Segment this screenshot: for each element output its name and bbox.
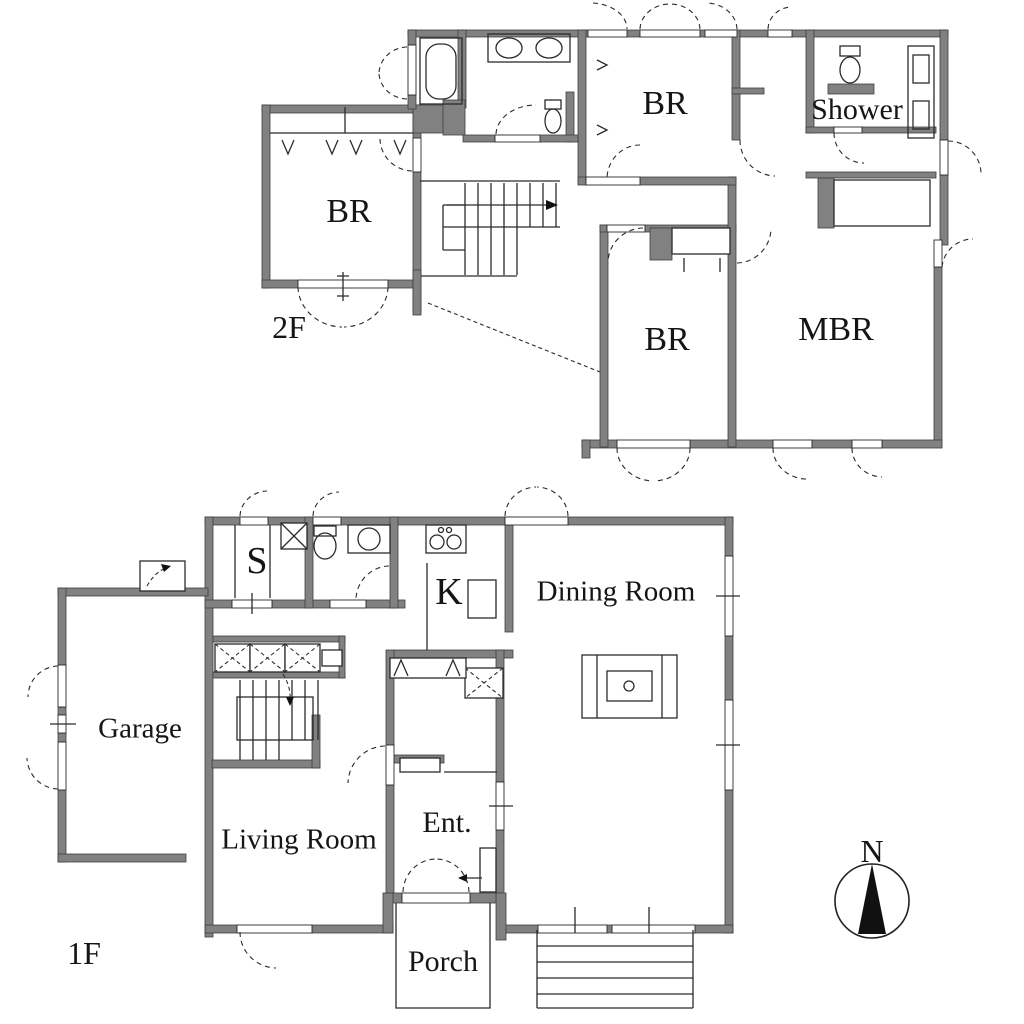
closet-2f-br-left xyxy=(270,107,413,154)
kitchen-stove-icon xyxy=(426,525,466,553)
compass-north-icon xyxy=(835,864,909,938)
floor-label-2f: 2F xyxy=(272,311,306,343)
floorplan-canvas: 2F BR BR Shower BR MBR 1F S K Dining Roo… xyxy=(0,0,1024,1024)
floor-2f-plan xyxy=(262,3,981,481)
kitchen-sink-icon xyxy=(468,580,496,618)
sliding-closet xyxy=(390,658,466,678)
porch-steps-icon xyxy=(537,907,693,1008)
room-label-br-left-2f: BR xyxy=(326,195,371,229)
staircase-2f-icon xyxy=(413,181,600,372)
floor-1f-plan xyxy=(27,487,740,1008)
door-arcs-2f xyxy=(298,3,981,481)
floorplan-drawing xyxy=(0,0,1024,1024)
double-sink-counter-icon xyxy=(488,34,570,62)
room-label-br-top-2f: BR xyxy=(642,87,687,121)
room-label-storage: S xyxy=(246,542,267,580)
toilet-icon-1f xyxy=(314,526,336,559)
room-label-living-room: Living Room xyxy=(221,826,376,855)
room-label-dining-room: Dining Room xyxy=(537,578,696,607)
shower-stall-icon xyxy=(834,180,930,226)
toilet-icon-2f-shower xyxy=(840,46,860,83)
room-label-shower: Shower xyxy=(811,95,903,125)
garage-gate-box xyxy=(140,561,185,591)
room-label-br-middle-2f: BR xyxy=(644,323,689,357)
wash-basin-icon xyxy=(348,525,390,553)
toilet-icon-2f-washroom xyxy=(545,100,561,133)
floor-label-1f: 1F xyxy=(67,937,101,969)
room-label-kitchen: K xyxy=(435,573,462,611)
dining-table-icon xyxy=(582,655,677,718)
room-label-entrance: Ent. xyxy=(422,808,471,838)
compass-north-label: N xyxy=(860,835,883,867)
room-label-porch: Porch xyxy=(408,947,478,977)
bathtub-icon xyxy=(420,38,462,104)
room-label-garage: Garage xyxy=(98,715,182,744)
closet-2f-br-middle xyxy=(650,228,730,272)
room-label-mbr: MBR xyxy=(798,313,874,347)
staircase-1f-icon xyxy=(237,674,318,760)
vanity-sinks-icon xyxy=(908,46,934,138)
